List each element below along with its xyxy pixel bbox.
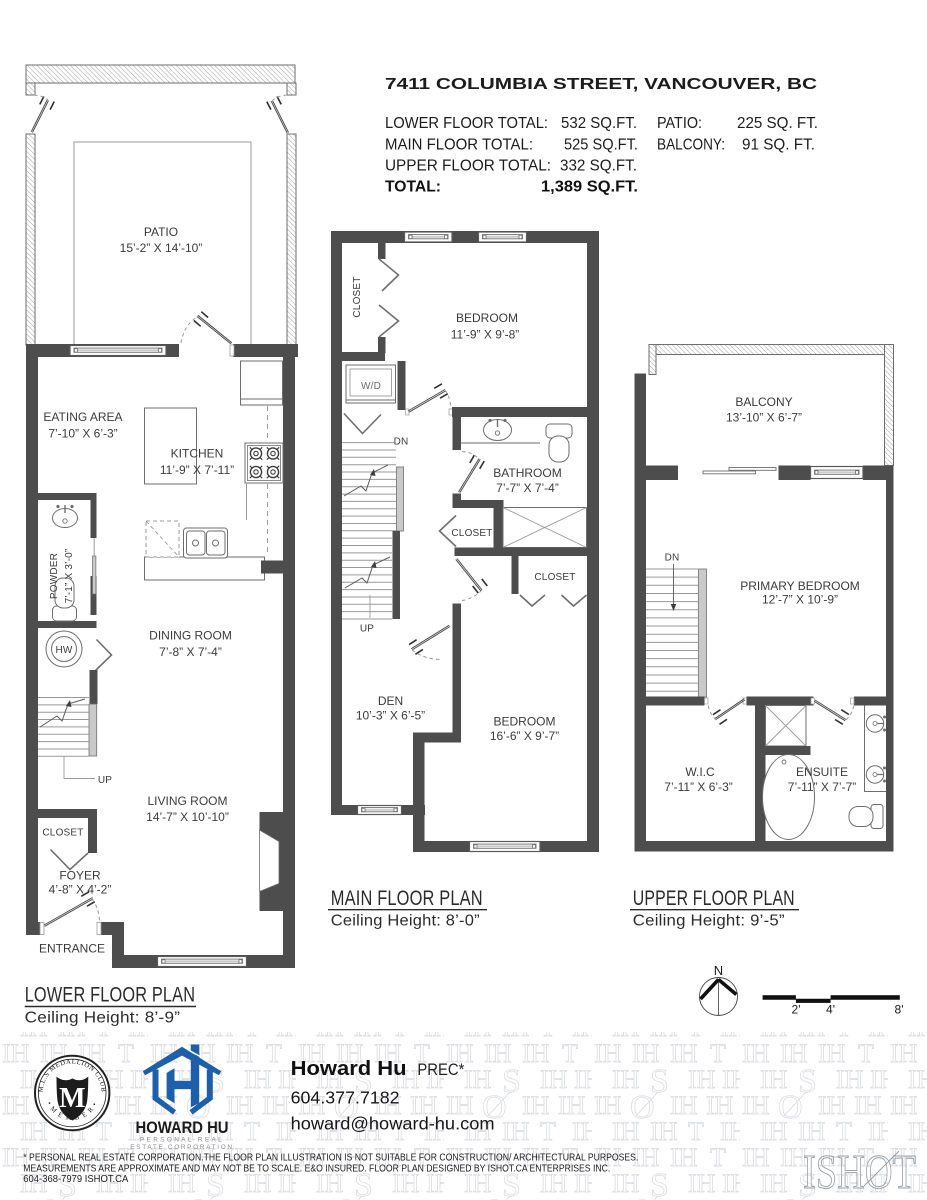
svg-text:BALCONY: BALCONY xyxy=(735,395,792,409)
svg-text:W/D: W/D xyxy=(361,381,381,392)
svg-text:DEN: DEN xyxy=(378,694,403,708)
svg-text:532 SQ.FT.: 532 SQ.FT. xyxy=(561,115,637,132)
svg-text:PATIO:: PATIO: xyxy=(657,115,702,132)
svg-text:Ceiling Height: 9’-5”: Ceiling Height: 9’-5” xyxy=(633,913,785,930)
svg-text:7’-10” X 6’-3”: 7’-10” X 6’-3” xyxy=(48,427,117,441)
svg-text:Ceiling Height: 8’-0”: Ceiling Height: 8’-0” xyxy=(331,913,480,930)
svg-text:7’-1” X 3’-0”: 7’-1” X 3’-0” xyxy=(64,549,75,604)
svg-text:MAIN FLOOR TOTAL:: MAIN FLOOR TOTAL: xyxy=(385,137,533,154)
svg-text:POWDER: POWDER xyxy=(49,553,60,599)
svg-text:PREC*: PREC* xyxy=(417,1061,465,1079)
svg-text:13’-10” X 6’-7”: 13’-10” X 6’-7” xyxy=(726,411,802,425)
svg-text:CLOSET: CLOSET xyxy=(42,828,83,839)
svg-text:ESTATE CORPORATION: ESTATE CORPORATION xyxy=(130,1144,233,1151)
svg-text:BEDROOM: BEDROOM xyxy=(493,715,555,729)
svg-text:225 SQ. FT.: 225 SQ. FT. xyxy=(737,115,818,132)
svg-text:604.377.7182: 604.377.7182 xyxy=(291,1088,400,1108)
svg-text:N: N xyxy=(714,963,723,978)
svg-text:ENSUITE: ENSUITE xyxy=(796,765,848,779)
svg-text:BATHROOM: BATHROOM xyxy=(493,466,561,480)
svg-text:604-368-7979 ISHOT.CA: 604-368-7979 ISHOT.CA xyxy=(23,1174,128,1185)
svg-text:CLOSET: CLOSET xyxy=(534,572,575,583)
svg-text:CLOSET: CLOSET xyxy=(451,528,492,539)
svg-text:howard@howard-hu.com: howard@howard-hu.com xyxy=(291,1114,495,1134)
svg-text:7’-11” X 6’-3”: 7’-11” X 6’-3” xyxy=(664,780,732,794)
svg-text:7411 COLUMBIA STREET, VANCOUVE: 7411 COLUMBIA STREET, VANCOUVER, BC xyxy=(385,76,817,93)
svg-text:7’-7” X 7’-4”: 7’-7” X 7’-4” xyxy=(496,481,559,495)
svg-text:LOWER FLOOR PLAN: LOWER FLOOR PLAN xyxy=(25,984,196,1007)
svg-text:PATIO: PATIO xyxy=(144,225,178,239)
svg-text:Howard Hu: Howard Hu xyxy=(291,1058,407,1080)
svg-text:14’-7” X 10’-10”: 14’-7” X 10’-10” xyxy=(146,810,229,824)
svg-text:* PERSONAL REAL ESTATE CORPORA: * PERSONAL REAL ESTATE CORPORATION.THE F… xyxy=(23,1153,638,1164)
svg-text:332 SQ.FT.: 332 SQ.FT. xyxy=(560,158,637,175)
svg-text:DN: DN xyxy=(394,437,409,448)
svg-text:EATING AREA: EATING AREA xyxy=(43,410,122,424)
svg-text:15’-2” X 14’-10”: 15’-2” X 14’-10” xyxy=(120,241,203,255)
svg-text:KITCHEN: KITCHEN xyxy=(171,447,224,461)
svg-text:4’-8” X 4’-2”: 4’-8” X 4’-2” xyxy=(49,883,112,897)
svg-text:LIVING ROOM: LIVING ROOM xyxy=(147,794,227,808)
svg-text:PRIMARY BEDROOM: PRIMARY BEDROOM xyxy=(740,579,860,593)
svg-text:PERSONAL REAL: PERSONAL REAL xyxy=(140,1137,224,1144)
svg-text:TOTAL:: TOTAL: xyxy=(385,179,441,196)
svg-text:7’-11” X 7’-7”: 7’-11” X 7’-7” xyxy=(788,780,856,794)
svg-text:MEASUREMENTS ARE APPROXIMATE A: MEASUREMENTS ARE APPROXIMATE AND MAY NOT… xyxy=(23,1163,610,1174)
svg-text:BALCONY:: BALCONY: xyxy=(657,137,725,154)
svg-text:HW: HW xyxy=(55,645,72,656)
svg-text:UPPER FLOOR PLAN: UPPER FLOOR PLAN xyxy=(633,887,795,910)
svg-text:UP: UP xyxy=(98,775,112,786)
svg-text:HOWARD HU: HOWARD HU xyxy=(136,1119,229,1137)
svg-text:16’-6” X 9’-7”: 16’-6” X 9’-7” xyxy=(490,729,559,743)
svg-text:12’-7” X 10’-9”: 12’-7” X 10’-9” xyxy=(762,593,838,607)
svg-text:ISHOT: ISHOT xyxy=(803,1144,916,1199)
svg-text:FOYER: FOYER xyxy=(59,869,101,883)
svg-text:CLOSET: CLOSET xyxy=(352,276,363,317)
svg-text:1,389 SQ.FT.: 1,389 SQ.FT. xyxy=(541,179,638,196)
svg-text:M: M xyxy=(59,1083,85,1114)
svg-text:11’-9” X 9’-8”: 11’-9” X 9’-8” xyxy=(451,328,519,342)
svg-text:DN: DN xyxy=(665,553,680,564)
svg-text:MAIN FLOOR PLAN: MAIN FLOOR PLAN xyxy=(331,887,483,910)
svg-text:ENTRANCE: ENTRANCE xyxy=(39,942,105,956)
svg-text:8': 8' xyxy=(895,1003,904,1017)
svg-text:91 SQ. FT.: 91 SQ. FT. xyxy=(742,137,815,154)
svg-text:7’-8” X 7’-4”: 7’-8” X 7’-4” xyxy=(159,645,222,659)
svg-text:11’-9” X 7’-11”: 11’-9” X 7’-11” xyxy=(160,463,234,477)
svg-text:W.I.C: W.I.C xyxy=(685,765,715,779)
svg-text:LOWER FLOOR TOTAL:: LOWER FLOOR TOTAL: xyxy=(385,115,548,132)
svg-text:2': 2' xyxy=(792,1003,801,1017)
svg-text:Ceiling Height: 8’-9”: Ceiling Height: 8’-9” xyxy=(25,1010,181,1027)
svg-text:UPPER FLOOR TOTAL:: UPPER FLOOR TOTAL: xyxy=(385,158,551,175)
svg-text:UP: UP xyxy=(360,624,374,635)
svg-text:10’-3” X 6’-5”: 10’-3” X 6’-5” xyxy=(356,709,425,723)
svg-text:BEDROOM: BEDROOM xyxy=(456,311,518,325)
svg-text:525 SQ.FT.: 525 SQ.FT. xyxy=(564,137,638,154)
svg-text:4': 4' xyxy=(826,1003,835,1017)
svg-text:DINING ROOM: DINING ROOM xyxy=(149,629,232,643)
